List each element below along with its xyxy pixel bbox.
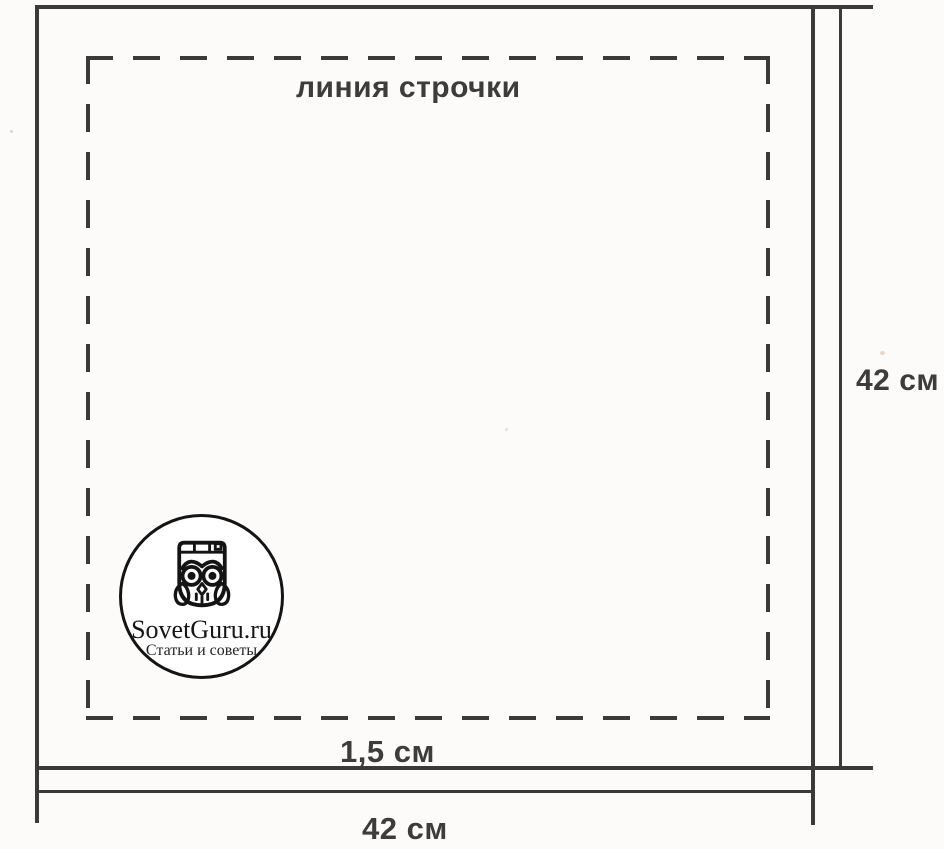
fabric-bottom-edge-line <box>35 766 873 770</box>
fabric-left-edge-line <box>35 5 39 823</box>
owl-icon <box>173 537 231 611</box>
fabric-top-edge-line <box>35 5 873 9</box>
logo-site-name: SovetGuru.ru <box>131 616 272 643</box>
stitch-line-label: линия строчки <box>296 71 521 105</box>
seam-allowance-label: 1,5 см <box>340 735 435 769</box>
stitch-dash-right-line <box>766 56 770 720</box>
height-dimension-line <box>839 5 842 769</box>
stitch-dash-top-line <box>86 56 770 60</box>
width-dimension-label: 42 см <box>362 812 448 846</box>
fabric-right-edge-line <box>811 5 815 825</box>
watermark-logo: SovetGuru.ru Статьи и советы <box>119 514 284 679</box>
stitch-dash-bottom-line <box>86 716 770 720</box>
sewing-pattern-diagram: линия строчки 42 см 1,5 см 42 см <box>0 0 944 849</box>
width-dimension-line <box>35 790 814 793</box>
height-dimension-label: 42 см <box>856 364 939 398</box>
logo-tagline: Статьи и советы <box>146 643 257 659</box>
scan-speck <box>880 351 885 355</box>
scan-speck <box>505 428 508 431</box>
stitch-dash-left-line <box>86 56 90 720</box>
scan-speck <box>10 130 13 133</box>
